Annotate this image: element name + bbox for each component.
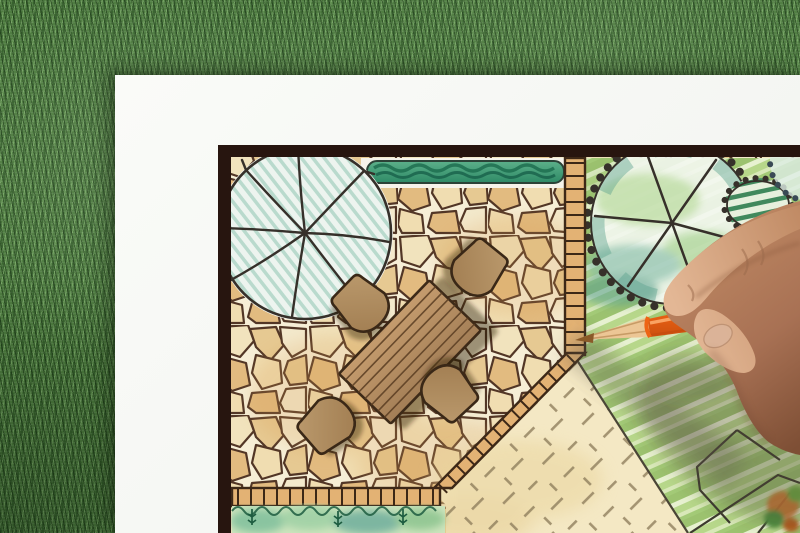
hedge	[361, 158, 569, 188]
garden-plan-drawing	[218, 145, 800, 533]
planting-bed	[230, 506, 445, 533]
photo-scene	[0, 0, 800, 533]
